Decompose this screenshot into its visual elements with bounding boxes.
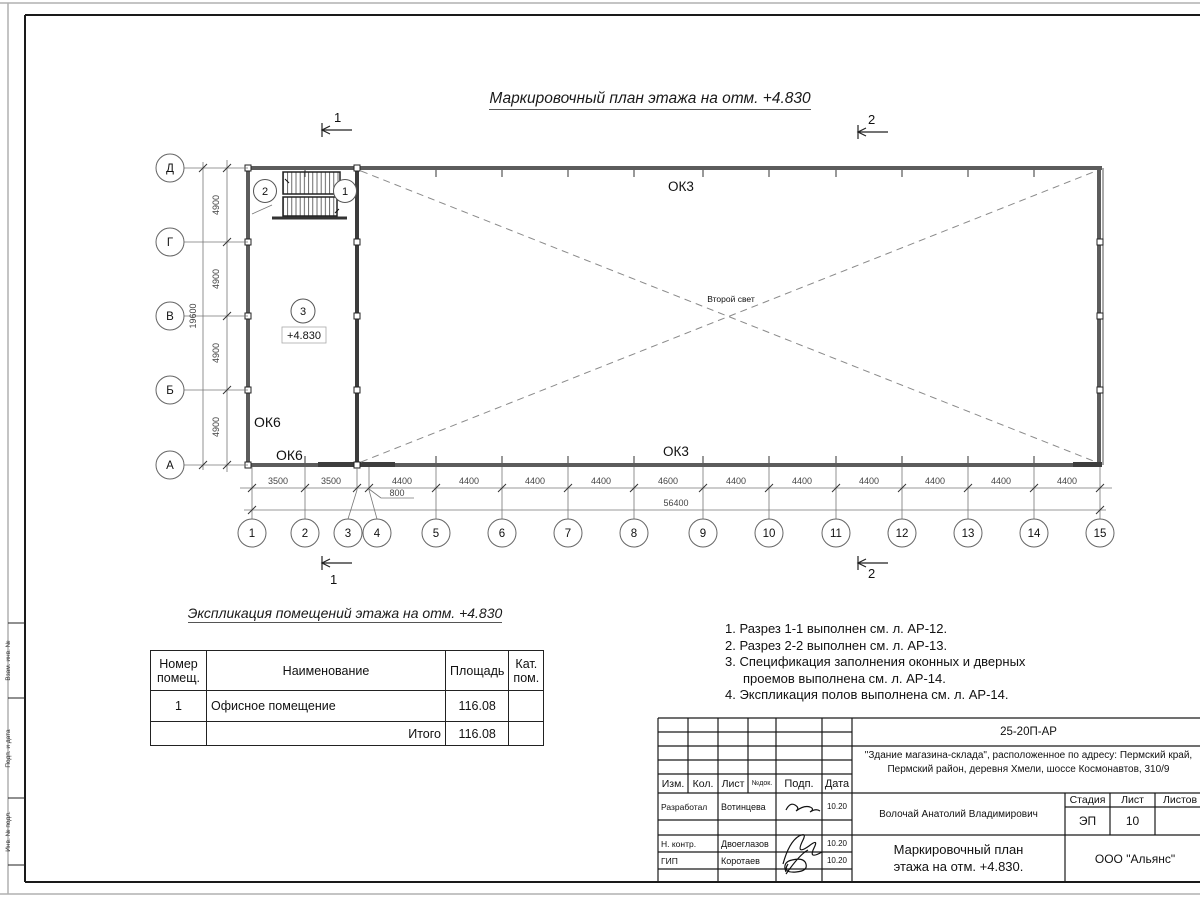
cell-room-number: 1 — [151, 691, 207, 722]
svg-text:11: 11 — [830, 528, 842, 540]
project-line: Пермский район, деревня Хмели, шоссе Кос… — [852, 763, 1200, 777]
note-item: 4. Экспликация полов выполнена см. л. АР… — [725, 687, 1055, 704]
svg-text:4400: 4400 — [792, 476, 812, 486]
svg-text:5: 5 — [433, 528, 439, 540]
svg-text:8: 8 — [631, 528, 637, 540]
window-label-ok3-top: ОК3 — [668, 179, 694, 194]
sheets-header: Листов — [1155, 793, 1200, 807]
window-label-ok3-bottom: ОК3 — [663, 444, 689, 459]
cell-total-number — [151, 722, 207, 746]
svg-text:4400: 4400 — [726, 476, 746, 486]
svg-text:1: 1 — [249, 528, 255, 540]
section-label: 2 — [868, 566, 875, 581]
col-header-name: Наименование — [207, 651, 446, 691]
svg-text:800: 800 — [389, 488, 404, 498]
cell-room-area: 116.08 — [446, 691, 509, 722]
svg-text:А: А — [166, 460, 174, 472]
rev-header-ndok: №док. — [748, 774, 776, 793]
drawing-sheet: 1 2 1 2 ОК3 ОК3 ОК6 ОК6 Второй свет 3 +4… — [0, 0, 1200, 900]
svg-text:4400: 4400 — [925, 476, 945, 486]
rev-header-podp: Подп. — [776, 774, 822, 793]
side-label-podp: Подп. и дата — [5, 716, 12, 781]
svg-text:19600: 19600 — [188, 303, 198, 328]
signatures — [783, 804, 822, 874]
svg-text:13: 13 — [962, 528, 975, 540]
wall-ticks — [305, 170, 1034, 463]
sheet-header: Лист — [1110, 793, 1155, 807]
svg-text:Г: Г — [167, 237, 174, 249]
axis-labels: Д Г В Б А 1 2 3 4 5 6 7 8 9 10 11 12 13 … — [166, 163, 1106, 540]
project-description: "Здание магазина-склада", расположенное … — [852, 749, 1200, 776]
section-label: 1 — [334, 110, 341, 125]
notes-list: 1. Разрез 1-1 выполнен см. л. АР-12. 2. … — [725, 621, 1055, 704]
svg-text:4900: 4900 — [211, 269, 221, 289]
cell-room-category — [509, 691, 544, 722]
svg-text:3500: 3500 — [268, 476, 288, 486]
rev-header-izm: Изм. — [658, 774, 688, 793]
void-label: Второй свет — [707, 294, 755, 304]
svg-text:14: 14 — [1028, 528, 1041, 540]
side-label-inv: Инв. № подл. — [5, 799, 12, 864]
svg-text:В: В — [166, 311, 174, 323]
rev-header-data: Дата — [822, 774, 852, 793]
column-extension-lines — [252, 467, 1100, 519]
svg-text:3: 3 — [345, 528, 351, 540]
project-line: "Здание магазина-склада", расположенное … — [852, 749, 1200, 763]
section-marks — [322, 123, 888, 570]
side-label-vzam: Взам. инв. № — [5, 628, 12, 693]
elevation-label: +4.830 — [287, 330, 321, 342]
signature-korotaev — [785, 850, 808, 874]
drawing-title-line: Маркировочный план — [852, 841, 1065, 858]
column-marker-squares — [245, 165, 1103, 468]
sheets-value — [1155, 807, 1200, 835]
explication-title: Экспликация помещений этажа на отм. +4.8… — [160, 605, 530, 621]
company-name: ООО "Альянс" — [1065, 835, 1200, 882]
chief-name: Волочай Анатолий Владимирович — [852, 793, 1065, 835]
svg-text:4900: 4900 — [211, 343, 221, 363]
svg-text:4400: 4400 — [591, 476, 611, 486]
role-developed-label: Разработал — [661, 793, 717, 820]
role-gip-name: Коротаев — [721, 852, 775, 869]
cell-room-name: Офисное помещение — [207, 691, 446, 722]
drawing-title-line: этажа на отм. +4.830. — [852, 858, 1065, 875]
svg-text:6: 6 — [499, 528, 505, 540]
column-axis-circles — [238, 519, 1114, 547]
stair-tag: 2 — [262, 186, 268, 198]
role-gip-label: ГИП — [661, 852, 717, 869]
svg-text:Б: Б — [166, 385, 174, 397]
room-tag-number: 3 — [300, 306, 306, 318]
svg-text:4400: 4400 — [459, 476, 479, 486]
svg-text:4400: 4400 — [525, 476, 545, 486]
svg-text:12: 12 — [896, 528, 909, 540]
role-developed-name: Вотинцева — [721, 793, 775, 820]
sheet-value: 10 — [1110, 807, 1155, 835]
plan-title: Маркировочный план этажа на отм. +4.830 — [400, 90, 900, 108]
svg-text:4900: 4900 — [211, 195, 221, 215]
note-item: 1. Разрез 1-1 выполнен см. л. АР-12. — [725, 621, 1055, 638]
section-label: 2 — [868, 112, 875, 127]
role-ncontrol-date: 10.20 — [822, 835, 852, 852]
stair-tag: 1 — [342, 186, 348, 198]
stage-value: ЭП — [1065, 807, 1110, 835]
role-developed-date: 10.20 — [822, 793, 852, 820]
svg-text:4400: 4400 — [392, 476, 412, 486]
signature-votintseva — [786, 804, 820, 812]
note-item: 2. Разрез 2-2 выполнен см. л. АР-13. — [725, 638, 1055, 655]
dimension-labels: 3500 3500 4400 4400 4400 4400 4600 4400 … — [188, 195, 1077, 508]
role-gip-date: 10.20 — [822, 852, 852, 869]
note-item: 3. Спецификация заполнения оконных и две… — [725, 654, 1055, 687]
drawing-title: Маркировочный план этажа на отм. +4.830. — [852, 841, 1065, 875]
role-ncontrol-name: Двоеглазов — [721, 835, 775, 852]
col-header-number: Номер помещ. — [151, 651, 207, 691]
stage-header: Стадия — [1065, 793, 1110, 807]
svg-text:9: 9 — [700, 528, 706, 540]
rev-header-kol: Кол. — [688, 774, 718, 793]
window-label-ok6-upper: ОК6 — [254, 414, 281, 430]
svg-text:4400: 4400 — [859, 476, 879, 486]
svg-text:3500: 3500 — [321, 476, 341, 486]
svg-text:56400: 56400 — [663, 498, 688, 508]
svg-text:4400: 4400 — [991, 476, 1011, 486]
svg-text:15: 15 — [1094, 528, 1107, 540]
cell-total-label: Итого — [207, 722, 446, 746]
svg-text:4900: 4900 — [211, 417, 221, 437]
void-diagonals — [361, 171, 1096, 462]
col-header-area: Площадь — [446, 651, 509, 691]
svg-text:Д: Д — [166, 163, 174, 175]
document-number: 25-20П-АР — [852, 718, 1200, 746]
svg-text:10: 10 — [763, 528, 776, 540]
rev-header-list: Лист — [718, 774, 748, 793]
cell-total-category — [509, 722, 544, 746]
section-label: 1 — [330, 572, 337, 587]
cell-total-area: 116.08 — [446, 722, 509, 746]
window-label-ok6-lower: ОК6 — [276, 447, 303, 463]
svg-text:4400: 4400 — [1057, 476, 1077, 486]
plan-walls — [246, 166, 1103, 467]
role-ncontrol-label: Н. контр. — [661, 835, 717, 852]
explication-table: Номер помещ. Наименование Площадь Кат. п… — [150, 650, 544, 746]
svg-text:4600: 4600 — [658, 476, 678, 486]
svg-text:7: 7 — [565, 528, 571, 540]
col-header-category: Кат. пом. — [509, 651, 544, 691]
svg-text:4: 4 — [374, 528, 381, 540]
svg-text:2: 2 — [302, 528, 308, 540]
